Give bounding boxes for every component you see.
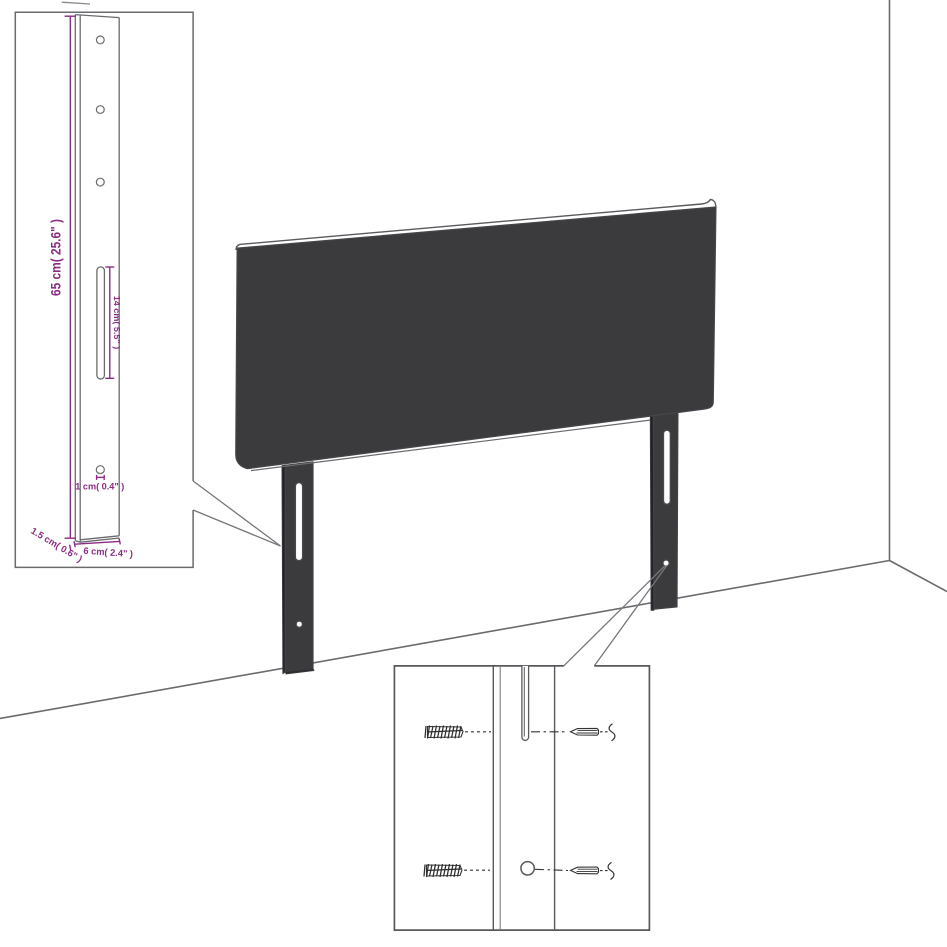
svg-text:1 cm( 0.4" ): 1 cm( 0.4" ) (75, 482, 124, 493)
svg-text:65 cm( 25.6" ): 65 cm( 25.6" ) (49, 219, 64, 296)
svg-text:14 cm( 5.5" ): 14 cm( 5.5" ) (112, 296, 122, 350)
